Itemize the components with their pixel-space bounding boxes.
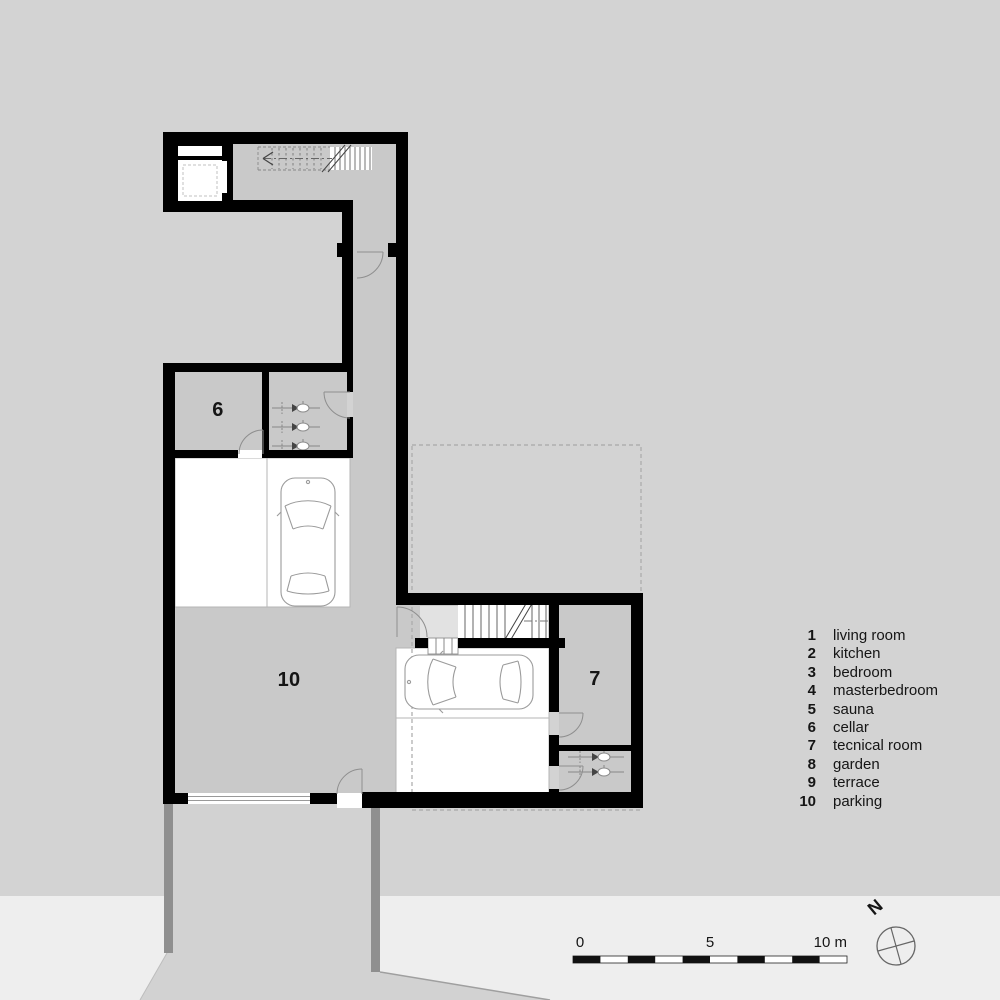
window [178, 146, 222, 156]
legend-label: kitchen [833, 645, 881, 663]
legend-label: garden [833, 756, 880, 774]
room-label-technical-room: 7 [580, 668, 610, 691]
car-icon [405, 651, 533, 713]
legend-row: 1living room [786, 627, 938, 645]
legend-label: sauna [833, 701, 874, 719]
scale-tick-0: 0 [570, 934, 590, 951]
scale-bar [573, 956, 847, 963]
scale-tick-5: 5 [700, 934, 720, 951]
legend-row: 8garden [786, 756, 938, 774]
legend-row: 5sauna [786, 701, 938, 719]
legend-row: 7tecnical room [786, 737, 938, 755]
car-icon [277, 478, 339, 606]
legend-number: 1 [786, 627, 816, 645]
legend-row: 6cellar [786, 719, 938, 737]
legend-number: 2 [786, 645, 816, 663]
legend-row: 4masterbedroom [786, 682, 938, 700]
legend-row: 9terrace [786, 774, 938, 792]
storage-floor [269, 372, 347, 450]
legend: 1living room 2kitchen 3bedroom 4masterbe… [786, 627, 938, 811]
legend-number: 3 [786, 664, 816, 682]
room-label-cellar: 6 [203, 399, 233, 422]
legend-label: parking [833, 793, 882, 811]
legend-label: masterbedroom [833, 682, 938, 700]
stair-landing [420, 606, 460, 640]
garage-door [188, 793, 310, 804]
legend-label: living room [833, 627, 906, 645]
floor-plan-page: 6 7 10 1living room 2kitchen 3bedroom 4m… [0, 0, 1000, 1000]
parking-floor [175, 607, 396, 793]
room-label-parking: 10 [274, 669, 304, 692]
legend-label: terrace [833, 774, 880, 792]
elevator-door-opening [221, 161, 227, 193]
legend-number: 9 [786, 774, 816, 792]
legend-row: 10parking [786, 793, 938, 811]
legend-number: 5 [786, 701, 816, 719]
legend-label: bedroom [833, 664, 892, 682]
legend-number: 10 [786, 793, 816, 811]
floor-plan-drawing [0, 0, 1000, 1000]
legend-number: 4 [786, 682, 816, 700]
retaining-wall-left [164, 803, 173, 953]
scale-tick-10m: 10 m [787, 934, 847, 951]
legend-row: 3bedroom [786, 664, 938, 682]
cellar-door-opening [238, 450, 262, 458]
legend-label: tecnical room [833, 737, 922, 755]
retaining-wall-right [371, 803, 380, 972]
entry-door-opening [337, 793, 362, 808]
legend-row: 2kitchen [786, 645, 938, 663]
staircase-lower [458, 602, 552, 641]
legend-number: 7 [786, 737, 816, 755]
legend-number: 8 [786, 756, 816, 774]
elevator-shaft [178, 160, 222, 201]
legend-number: 6 [786, 719, 816, 737]
legend-label: cellar [833, 719, 869, 737]
